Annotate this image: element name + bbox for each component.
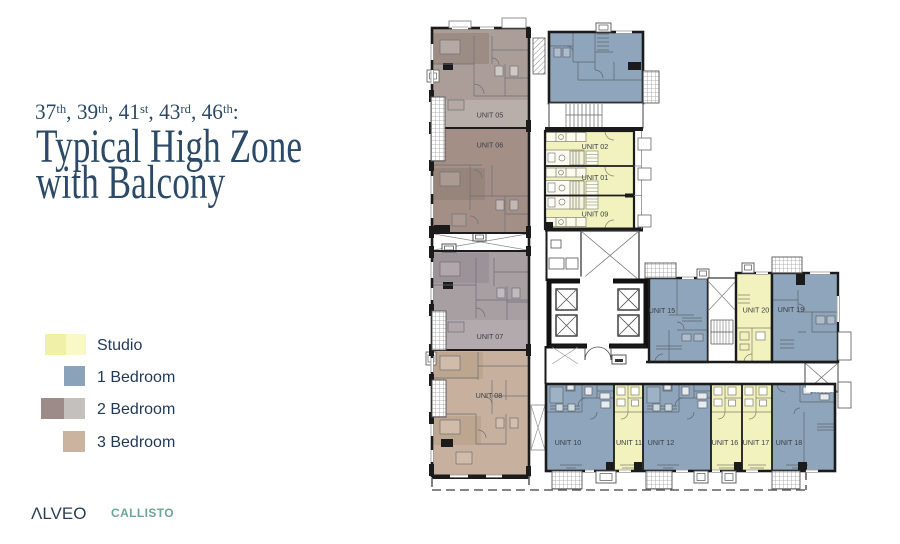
svg-text:UNIT 16: UNIT 16 [712, 438, 739, 447]
svg-text:UNIT 08: UNIT 08 [476, 391, 503, 400]
svg-text:UNIT 11: UNIT 11 [616, 438, 642, 447]
svg-text:UNIT 06: UNIT 06 [477, 141, 504, 150]
svg-text:UNIT 12: UNIT 12 [648, 438, 675, 447]
svg-text:UNIT 17: UNIT 17 [743, 438, 770, 447]
svg-text:UNIT 01: UNIT 01 [582, 173, 609, 182]
svg-text:UNIT 07: UNIT 07 [477, 332, 504, 341]
svg-text:UNIT 20: UNIT 20 [743, 306, 770, 315]
svg-text:UNIT 15: UNIT 15 [649, 306, 676, 315]
svg-text:UNIT 02: UNIT 02 [582, 142, 609, 151]
svg-text:UNIT 10: UNIT 10 [555, 438, 582, 447]
svg-text:UNIT 18: UNIT 18 [776, 438, 803, 447]
svg-text:UNIT 19: UNIT 19 [778, 305, 805, 314]
svg-text:UNIT 09: UNIT 09 [582, 210, 609, 219]
svg-text:UNIT 05: UNIT 05 [477, 111, 504, 120]
